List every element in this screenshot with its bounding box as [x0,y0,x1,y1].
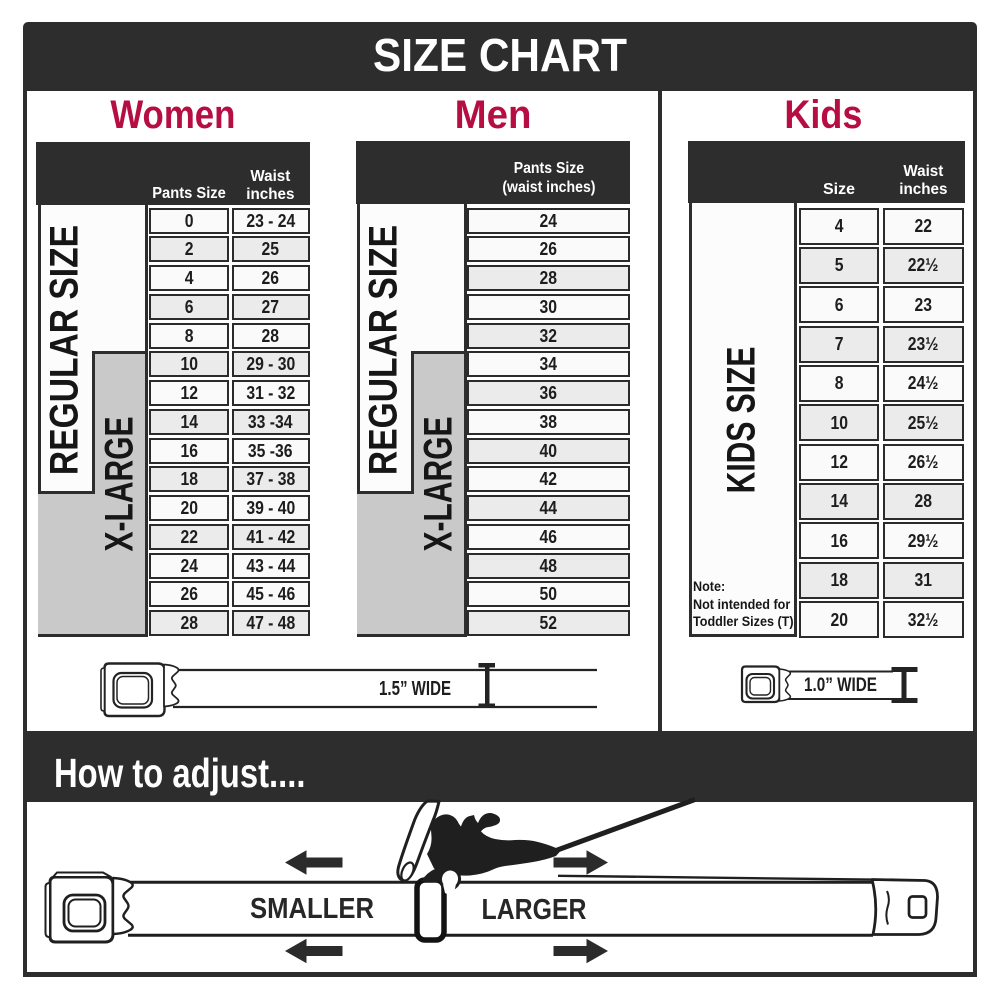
svg-text:1.5” WIDE: 1.5” WIDE [379,678,451,700]
svg-text:SMALLER: SMALLER [250,893,374,925]
svg-text:1.0” WIDE: 1.0” WIDE [804,674,877,696]
svg-text:LARGER: LARGER [482,894,587,926]
